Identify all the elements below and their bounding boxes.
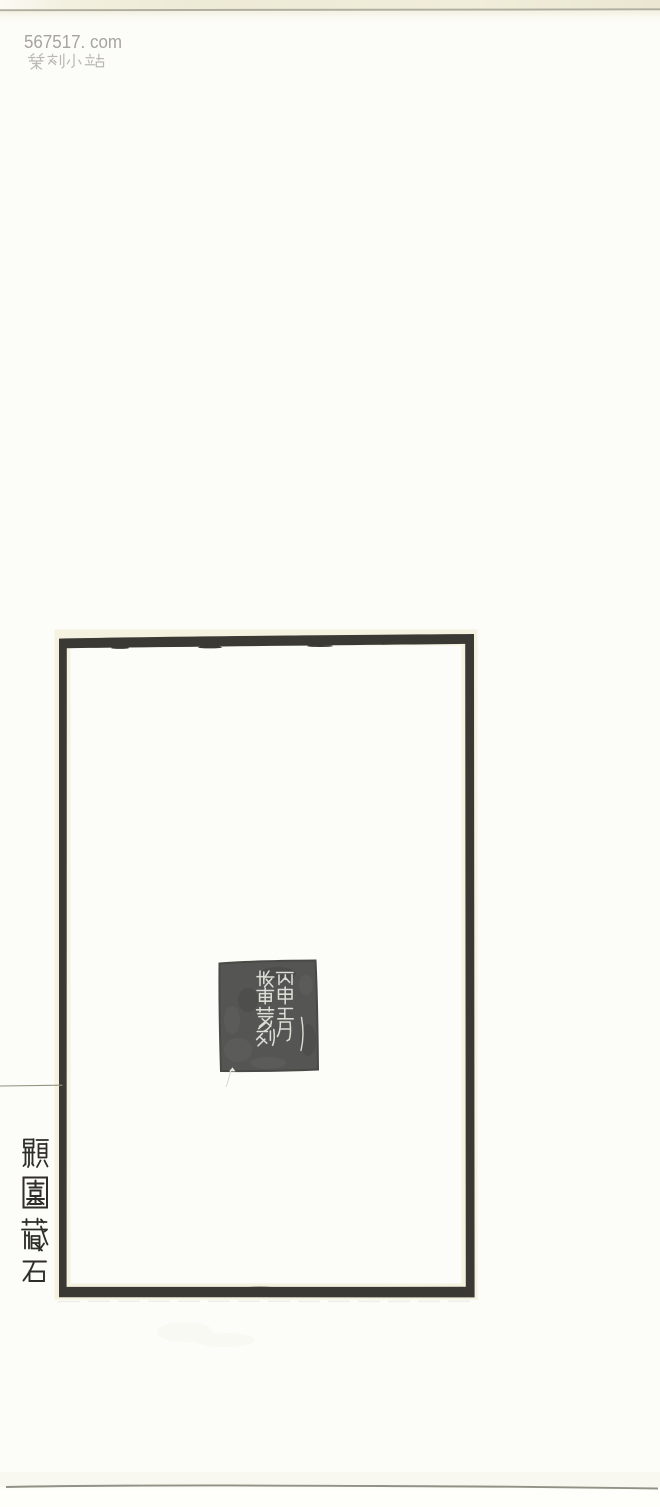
svg-text:567517. com: 567517. com bbox=[24, 31, 122, 52]
